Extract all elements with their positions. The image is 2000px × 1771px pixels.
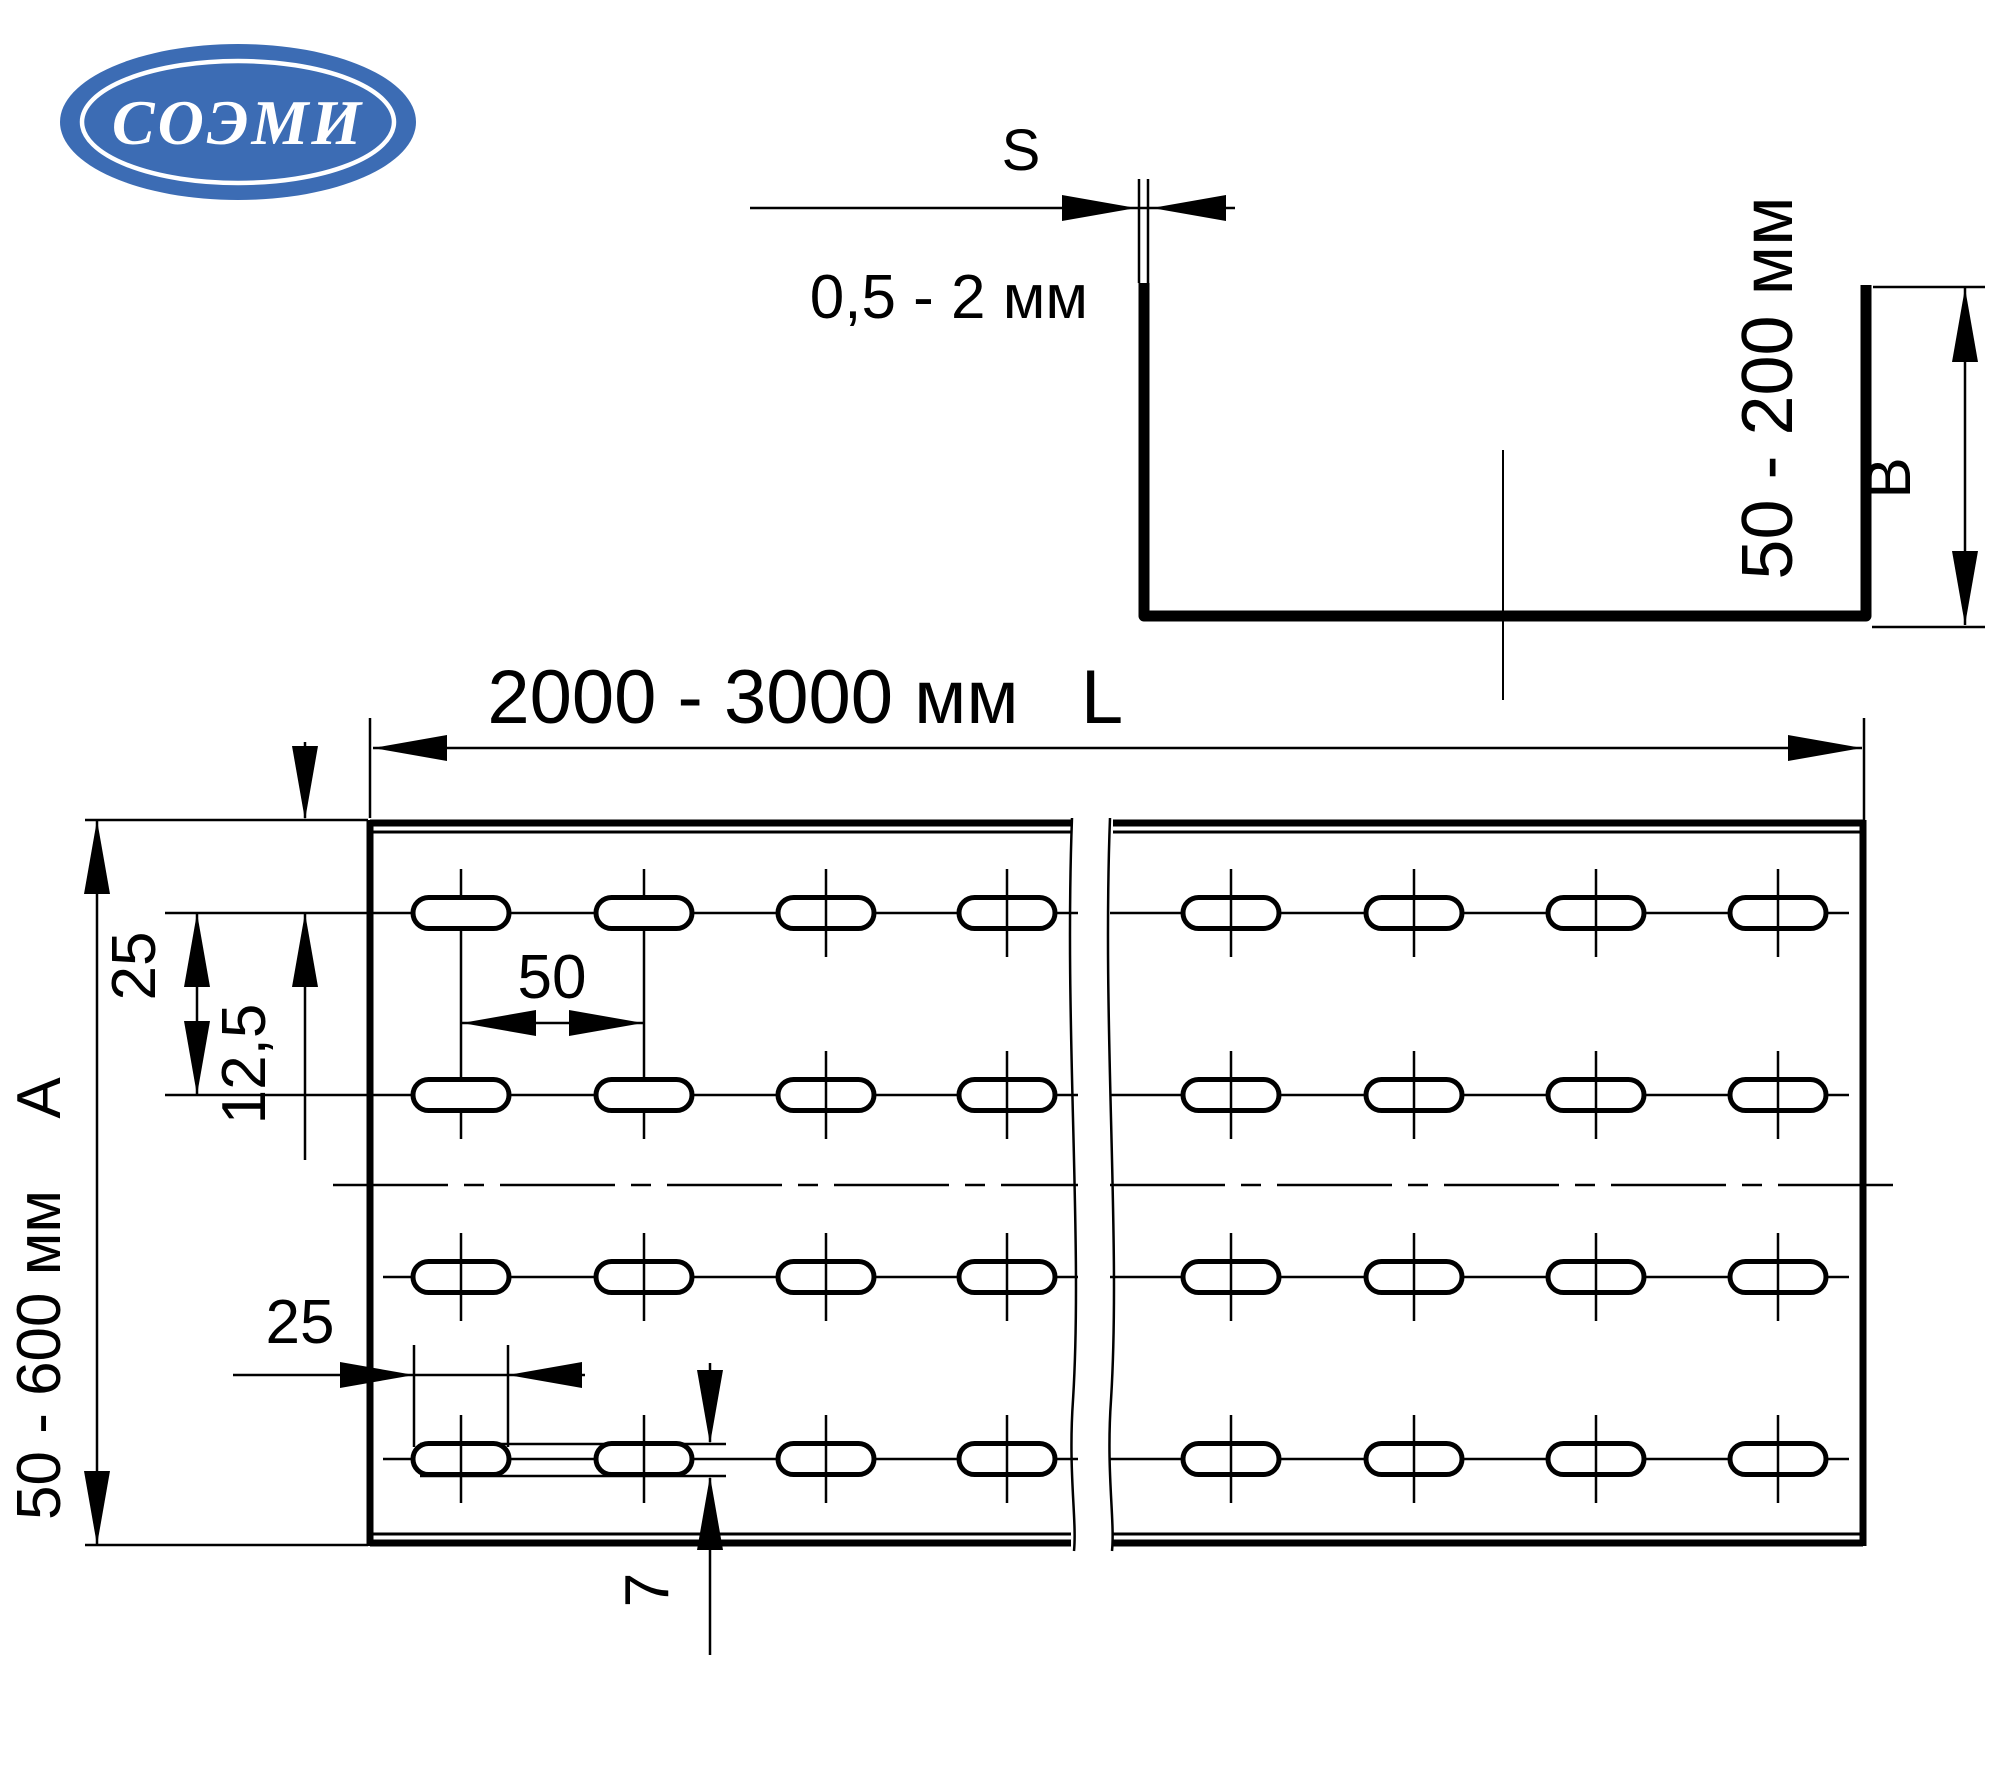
arrowhead-down-icon [184, 1021, 210, 1095]
slot [1548, 1051, 1644, 1139]
length-letter: L [1081, 655, 1123, 740]
arrowhead-right-icon [1062, 195, 1136, 221]
dimension-height-b: 50 - 200 мм В [1728, 196, 1985, 627]
arrowhead-left-icon [373, 735, 447, 761]
slot [778, 1233, 874, 1321]
slot [596, 1233, 692, 1321]
cross-section-view: S 0,5 - 2 мм 50 - 200 мм В [750, 118, 1985, 700]
slot [778, 869, 874, 957]
dimension-edge-offset-12-5: 12,5 [210, 742, 318, 1160]
slot [1366, 1233, 1462, 1321]
width-letter: А [5, 1077, 74, 1119]
slot [778, 1415, 874, 1503]
dimension-width-a: А 50 - 600 мм [5, 820, 368, 1545]
slot [1366, 869, 1462, 957]
slot-outline [596, 1080, 692, 1111]
slot-width-value: 7 [613, 1573, 682, 1607]
edge-offset-value: 12,5 [210, 1004, 279, 1125]
technical-drawing: СОЭМИ S 0,5 - 2 мм 50 - 200 мм В [0, 0, 2000, 1771]
slot [1548, 1233, 1644, 1321]
height-range: 50 - 200 мм [1728, 196, 1808, 579]
slot-outline [413, 1080, 509, 1111]
height-letter: В [1855, 457, 1924, 498]
row-pitch-value: 25 [100, 932, 169, 1001]
slot-length-value: 25 [266, 1288, 335, 1357]
arrowhead-right-icon [569, 1010, 643, 1036]
arrowhead-left-icon [462, 1010, 536, 1036]
arrowhead-up-icon [84, 820, 110, 894]
slot [1183, 1051, 1279, 1139]
arrowhead-left-icon [508, 1362, 582, 1388]
arrowhead-down-icon [697, 1370, 723, 1444]
slot [959, 1051, 1055, 1139]
slot [413, 898, 509, 929]
plan-view: 2000 - 3000 мм L А 50 - 600 мм 25 12,5 [5, 655, 1897, 1655]
dimension-row-pitch-25: 25 [100, 913, 210, 1095]
dimension-thickness-s: S 0,5 - 2 мм [750, 118, 1235, 332]
slot [959, 869, 1055, 957]
slot [413, 1233, 509, 1321]
slot [596, 1080, 692, 1111]
slot-outline [413, 898, 509, 929]
thickness-range: 0,5 - 2 мм [810, 263, 1088, 332]
slot [413, 1080, 509, 1111]
arrowhead-down-icon [1952, 551, 1978, 625]
slot [1183, 869, 1279, 957]
slot [959, 1233, 1055, 1321]
thickness-letter: S [1002, 118, 1041, 183]
slot [1366, 1415, 1462, 1503]
slot [1730, 1233, 1826, 1321]
arrowhead-right-icon [1788, 735, 1862, 761]
arrowhead-down-icon [84, 1471, 110, 1545]
arrowhead-right-icon [340, 1362, 414, 1388]
arrowhead-up-icon [292, 913, 318, 987]
slot [596, 898, 692, 929]
logo: СОЭМИ [60, 44, 416, 200]
arrowhead-up-icon [1952, 288, 1978, 362]
slot-pitch-value: 50 [518, 943, 587, 1012]
slot-outline [596, 898, 692, 929]
drawing-sheet: СОЭМИ S 0,5 - 2 мм 50 - 200 мм В [0, 0, 2000, 1771]
arrowhead-down-icon [292, 746, 318, 820]
slot [1366, 1051, 1462, 1139]
slot [1730, 1415, 1826, 1503]
slot [1548, 869, 1644, 957]
dimension-slot-pitch-50: 50 [462, 943, 643, 1036]
logo-text: СОЭМИ [112, 87, 364, 158]
arrowhead-up-icon [184, 913, 210, 987]
slot [1183, 1415, 1279, 1503]
slot [596, 1415, 692, 1503]
slot [413, 1415, 509, 1503]
arrowhead-up-icon [697, 1476, 723, 1550]
slot [1548, 1415, 1644, 1503]
slot [778, 1051, 874, 1139]
arrowhead-left-icon [1152, 195, 1226, 221]
slot [1730, 1051, 1826, 1139]
dimension-slot-width-7: 7 [420, 1363, 726, 1655]
dimension-length-l: 2000 - 3000 мм L [370, 655, 1864, 820]
width-range: 50 - 600 мм [5, 1190, 74, 1520]
length-range: 2000 - 3000 мм [487, 655, 1018, 740]
slot [959, 1415, 1055, 1503]
slot [1730, 869, 1826, 957]
slot [1183, 1233, 1279, 1321]
dimension-slot-length-25: 25 [233, 1288, 585, 1447]
